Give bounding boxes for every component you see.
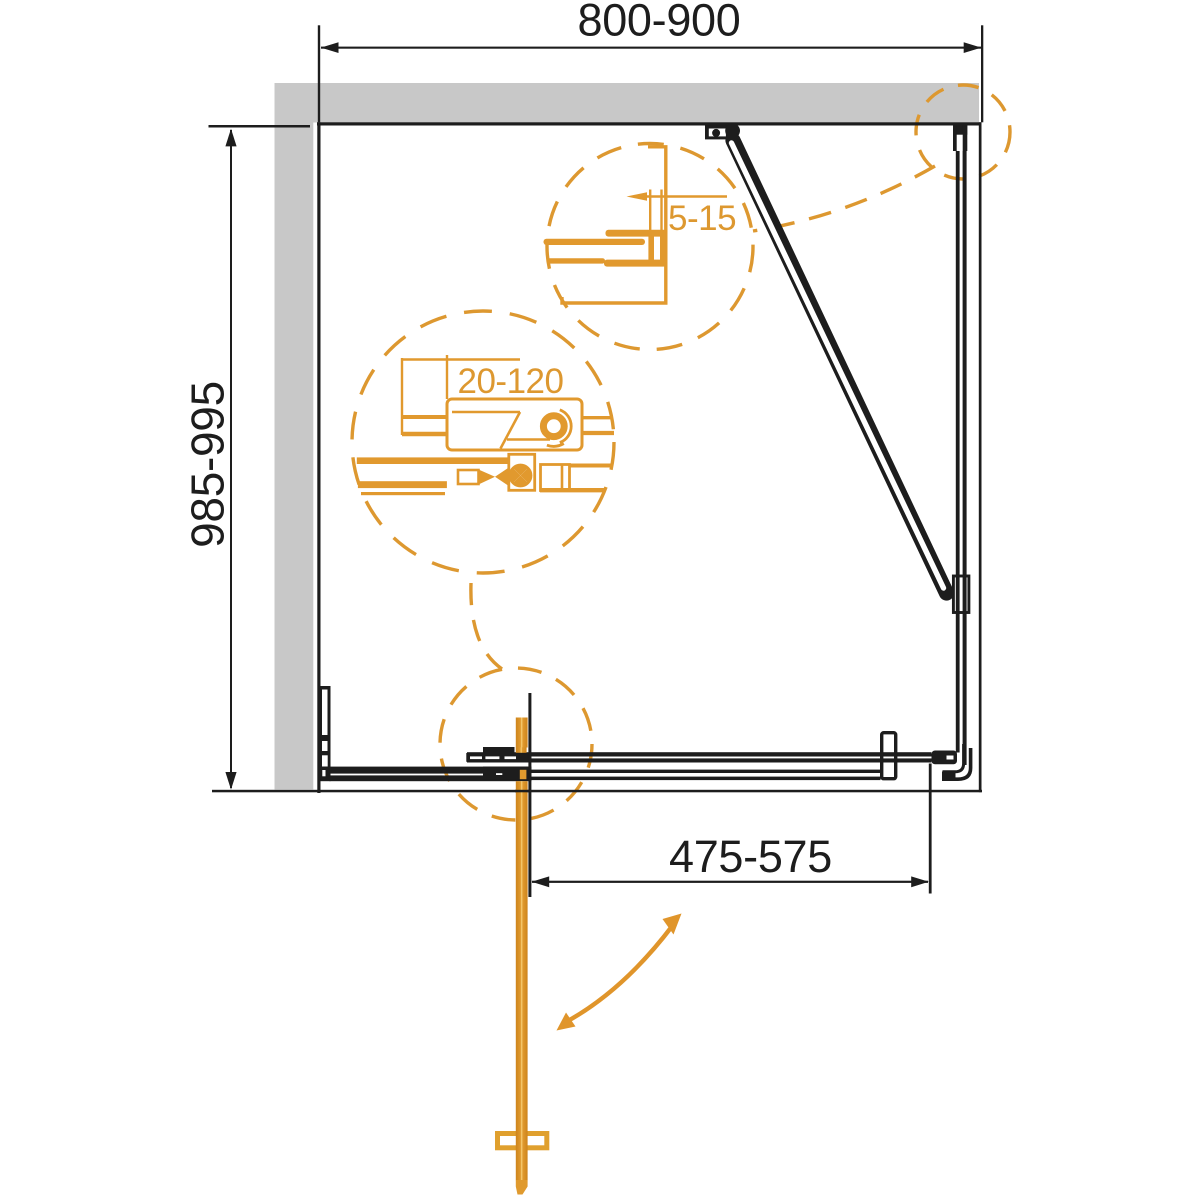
svg-text:800-900: 800-900 — [577, 0, 740, 46]
svg-text:475-575: 475-575 — [669, 831, 832, 882]
svg-text:985-995: 985-995 — [182, 381, 234, 548]
svg-text:5-15: 5-15 — [668, 199, 736, 238]
svg-text:20-120: 20-120 — [458, 362, 564, 401]
